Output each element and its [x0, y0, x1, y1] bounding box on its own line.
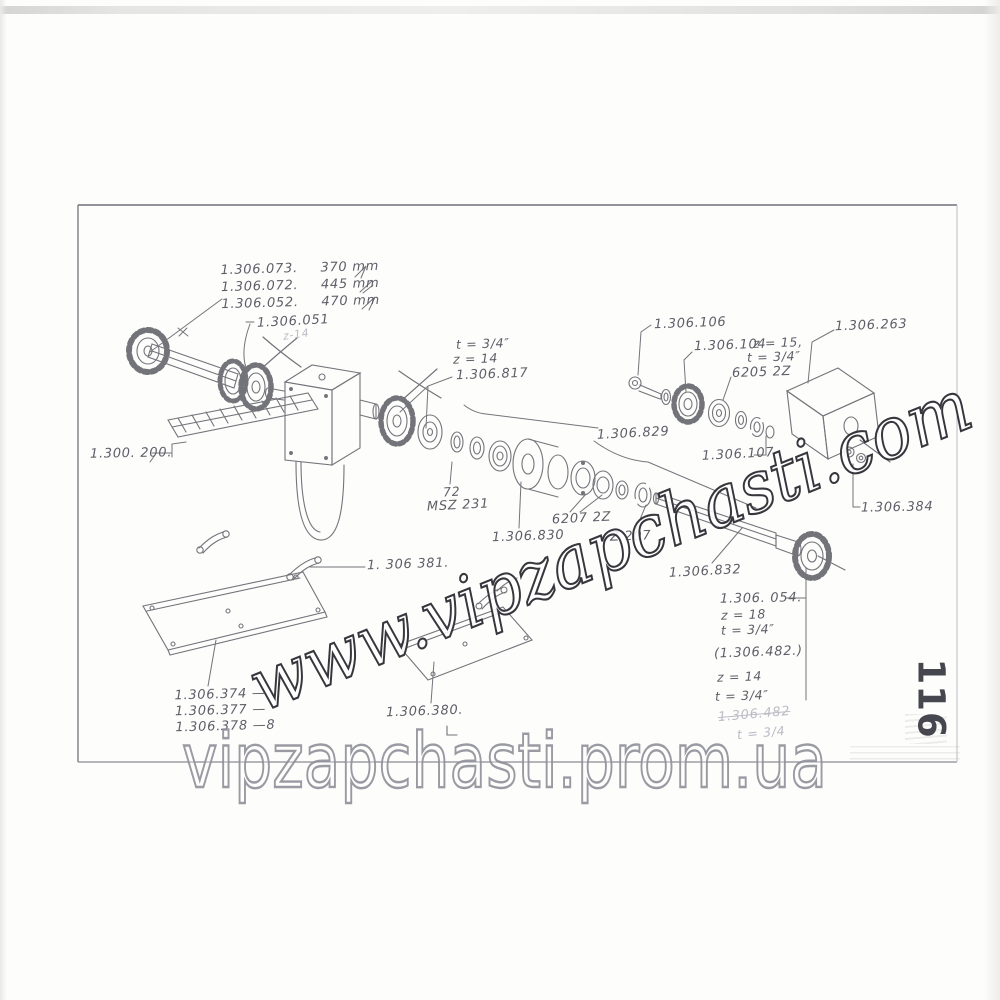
label-sp054-t: t = 3/4″	[721, 622, 775, 638]
label-p380: 1.306.380.	[386, 704, 464, 722]
label-p054: 1.306. 054.	[720, 591, 802, 607]
part-number: 1.306.052.	[221, 296, 305, 313]
label-p200: 1.300. 200.	[90, 446, 172, 462]
label-p381: 1. 306 381.	[367, 557, 450, 575]
label-sp104-t: t = 3/4″	[747, 349, 801, 365]
output-shaft	[654, 493, 802, 556]
label-plate-variants: 1.306.374 — 1.306.377 — 1.306.378 —8	[174, 687, 275, 736]
part-length: 445 mm	[321, 277, 380, 293]
label-z207: Z 207	[610, 529, 652, 545]
label-p384: 1.306.384	[861, 500, 934, 516]
label-alt482-t: t = 3/4″	[715, 688, 769, 704]
mounting-plate-large	[143, 572, 327, 655]
label-sp817-z: z = 14	[453, 351, 499, 367]
label-b6205: 6205 2Z	[732, 365, 792, 382]
part-length: 370 mm	[320, 260, 379, 276]
cover-housing-263	[787, 368, 890, 462]
label-p830: 1.306.830	[492, 529, 565, 546]
page-number: 116	[910, 659, 953, 717]
link-rods	[197, 531, 517, 609]
label-b6207: 6207 2Z	[552, 510, 612, 528]
drawing-frame	[78, 205, 957, 762]
label-p263: 1.306.263	[835, 318, 908, 335]
label-shaft-variants: 1.306.073. 370 mm 1.306.072. 445 mm 1.30…	[220, 260, 380, 313]
intermediate-gear-train	[381, 398, 511, 471]
label-alt482: (1.306.482.)	[714, 644, 803, 662]
part-number: 1.306.378 —8	[175, 719, 275, 737]
part-length: 470 mm	[321, 294, 380, 310]
part-number: 1.306.072.	[221, 279, 305, 296]
label-p106: 1.306.106	[654, 316, 727, 333]
diagram-linework	[0, 0, 1000, 1000]
gearbox	[285, 365, 379, 540]
scanned-catalog-page: 1.306.073. 370 mm 1.306.072. 445 mm 1.30…	[0, 0, 1000, 1000]
hand-x-marks	[261, 337, 441, 401]
sprocket-054	[795, 534, 845, 578]
hub-and-bearings	[513, 439, 651, 507]
retainer-rings-384	[844, 447, 866, 463]
label-alt482-z: z = 14	[717, 669, 763, 685]
label-p817: 1.306.817	[456, 367, 529, 384]
part-number: 1.306.073.	[220, 262, 304, 279]
